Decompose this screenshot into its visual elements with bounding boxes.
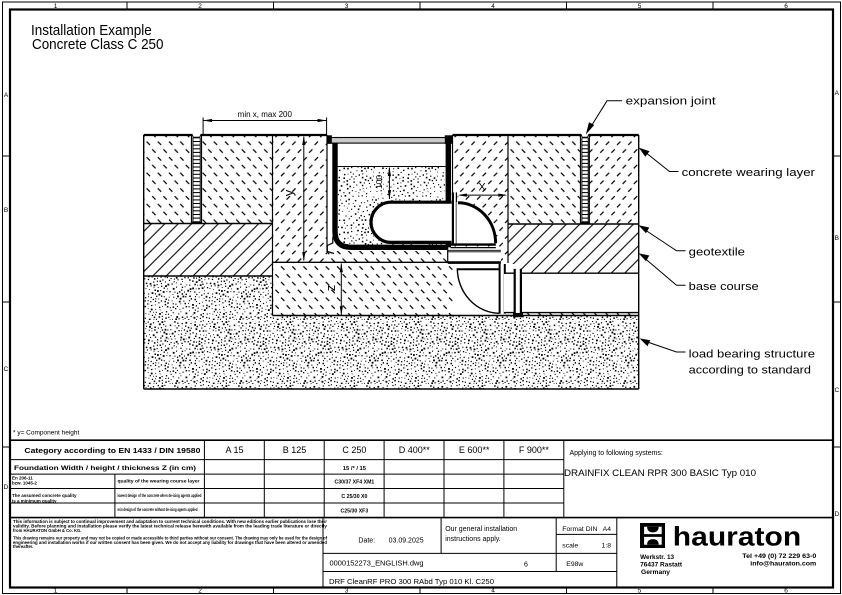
svg-text:6: 6 — [784, 588, 788, 595]
svg-text:C: C — [4, 366, 9, 373]
svg-text:y: y — [281, 189, 296, 196]
svg-text:according to standard: according to standard — [689, 365, 811, 377]
svg-text:D: D — [4, 484, 9, 491]
svg-text:15 /* / 15: 15 /* / 15 — [343, 466, 367, 472]
svg-text:min design of the concrete wit: min design of the concrete without de-ic… — [118, 507, 198, 512]
svg-text:quality of the wearing course: quality of the wearing course layer — [118, 479, 200, 484]
svg-text:geotextile: geotextile — [689, 247, 745, 259]
svg-text:DRAINFIX CLEAN RPR 300 BASIC T: DRAINFIX CLEAN RPR 300 BASIC Typ 010 — [564, 467, 756, 478]
svg-text:2: 2 — [198, 588, 202, 595]
svg-text:E98w: E98w — [566, 561, 583, 568]
svg-text:z: z — [323, 285, 338, 292]
svg-text:Applying to following systems:: Applying to following systems: — [570, 450, 663, 457]
svg-text:engineering and installation w: engineering and installation works if ou… — [13, 540, 327, 545]
svg-text:D 400**: D 400** — [399, 445, 431, 455]
svg-text:E 600**: E 600** — [459, 445, 490, 455]
svg-text:76437 Rastatt: 76437 Rastatt — [640, 562, 682, 568]
svg-text:B 125: B 125 — [283, 445, 307, 455]
svg-text:C 250: C 250 — [342, 445, 366, 455]
svg-text:Foundation Width / height / t: Foundation Width / height / thickness Z … — [14, 465, 196, 472]
svg-text:B: B — [835, 235, 839, 242]
svg-text:4: 4 — [491, 3, 495, 10]
svg-text:6: 6 — [784, 3, 788, 10]
svg-text:Date:: Date: — [358, 538, 375, 545]
svg-text:A: A — [835, 90, 840, 97]
svg-text:C: C — [834, 387, 839, 394]
svg-text:3: 3 — [345, 3, 349, 10]
svg-text:base course: base course — [689, 281, 759, 293]
svg-text:Category according to EN 1433: Category according to EN 1433 / DIN 1958… — [24, 448, 200, 455]
svg-text:C25/30 XF3: C25/30 XF3 — [341, 508, 369, 514]
svg-text:The assumed concrete quality: The assumed concrete quality — [12, 493, 77, 498]
svg-text:C 25/30 X0: C 25/30 X0 — [341, 494, 367, 500]
svg-text:info@hauraton.com: info@hauraton.com — [750, 562, 816, 568]
svg-text:1: 1 — [54, 588, 58, 595]
svg-text:1:8: 1:8 — [602, 543, 612, 550]
svg-text:Werkstr. 13: Werkstr. 13 — [640, 555, 675, 561]
svg-text:3: 3 — [345, 588, 349, 595]
svg-text:B: B — [4, 207, 8, 214]
svg-text:load bearing structure: load bearing structure — [689, 349, 815, 361]
svg-text:F 900**: F 900** — [519, 445, 550, 455]
svg-text:D: D — [834, 511, 839, 518]
svg-text:Format DIN: Format DIN — [562, 526, 597, 533]
svg-text:2: 2 — [198, 3, 202, 10]
svg-text:03.09.2025: 03.09.2025 — [389, 538, 424, 545]
svg-text:Tel +49 (0) 72 229 63-0: Tel +49 (0) 72 229 63-0 — [742, 554, 817, 560]
svg-text:instructions apply.: instructions apply. — [445, 536, 501, 543]
svg-text:5: 5 — [638, 588, 642, 595]
svg-text:100: 100 — [374, 175, 384, 189]
svg-text:lowest design of the concrete: lowest design of the concrete when de-ic… — [118, 493, 202, 498]
svg-text:concrete wearing layer: concrete wearing layer — [682, 167, 816, 179]
svg-text:Concrete Class C 250: Concrete Class C 250 — [32, 36, 164, 53]
svg-text:A 15: A 15 — [225, 445, 243, 455]
svg-text:4: 4 — [491, 588, 495, 595]
svg-text:C30/37 XF4 XM1: C30/37 XF4 XM1 — [335, 480, 375, 486]
svg-text:Our general installation: Our general installation — [445, 526, 517, 533]
svg-text:thereafter.: thereafter. — [13, 544, 33, 549]
svg-text:from HAURATON GmbH & Co. KG.: from HAURATON GmbH & Co. KG. — [13, 528, 81, 533]
svg-text:6: 6 — [524, 562, 528, 569]
svg-text:hauraton: hauraton — [673, 521, 801, 551]
svg-text:A4: A4 — [603, 526, 612, 533]
svg-text:X: X — [478, 182, 486, 194]
svg-text:1: 1 — [54, 3, 58, 10]
svg-text:* y= Component height: * y= Component height — [13, 430, 80, 437]
svg-text:Germany: Germany — [641, 570, 671, 576]
svg-text:0000152273_ENGLISH.dwg: 0000152273_ENGLISH.dwg — [330, 561, 424, 568]
svg-text:is a minimum quality: is a minimum quality — [12, 499, 57, 504]
svg-text:expansion joint: expansion joint — [626, 96, 717, 108]
svg-text:DRF CleanRF PRO 300 RAbd Typ 0: DRF CleanRF PRO 300 RAbd Typ 010 Kl. C25… — [329, 577, 494, 586]
svg-text:min x, max 200: min x, max 200 — [238, 110, 293, 119]
svg-text:scale: scale — [562, 543, 578, 550]
svg-text:A: A — [4, 92, 9, 99]
svg-text:5: 5 — [638, 3, 642, 10]
svg-text:bzw. 1045-2: bzw. 1045-2 — [12, 481, 37, 486]
